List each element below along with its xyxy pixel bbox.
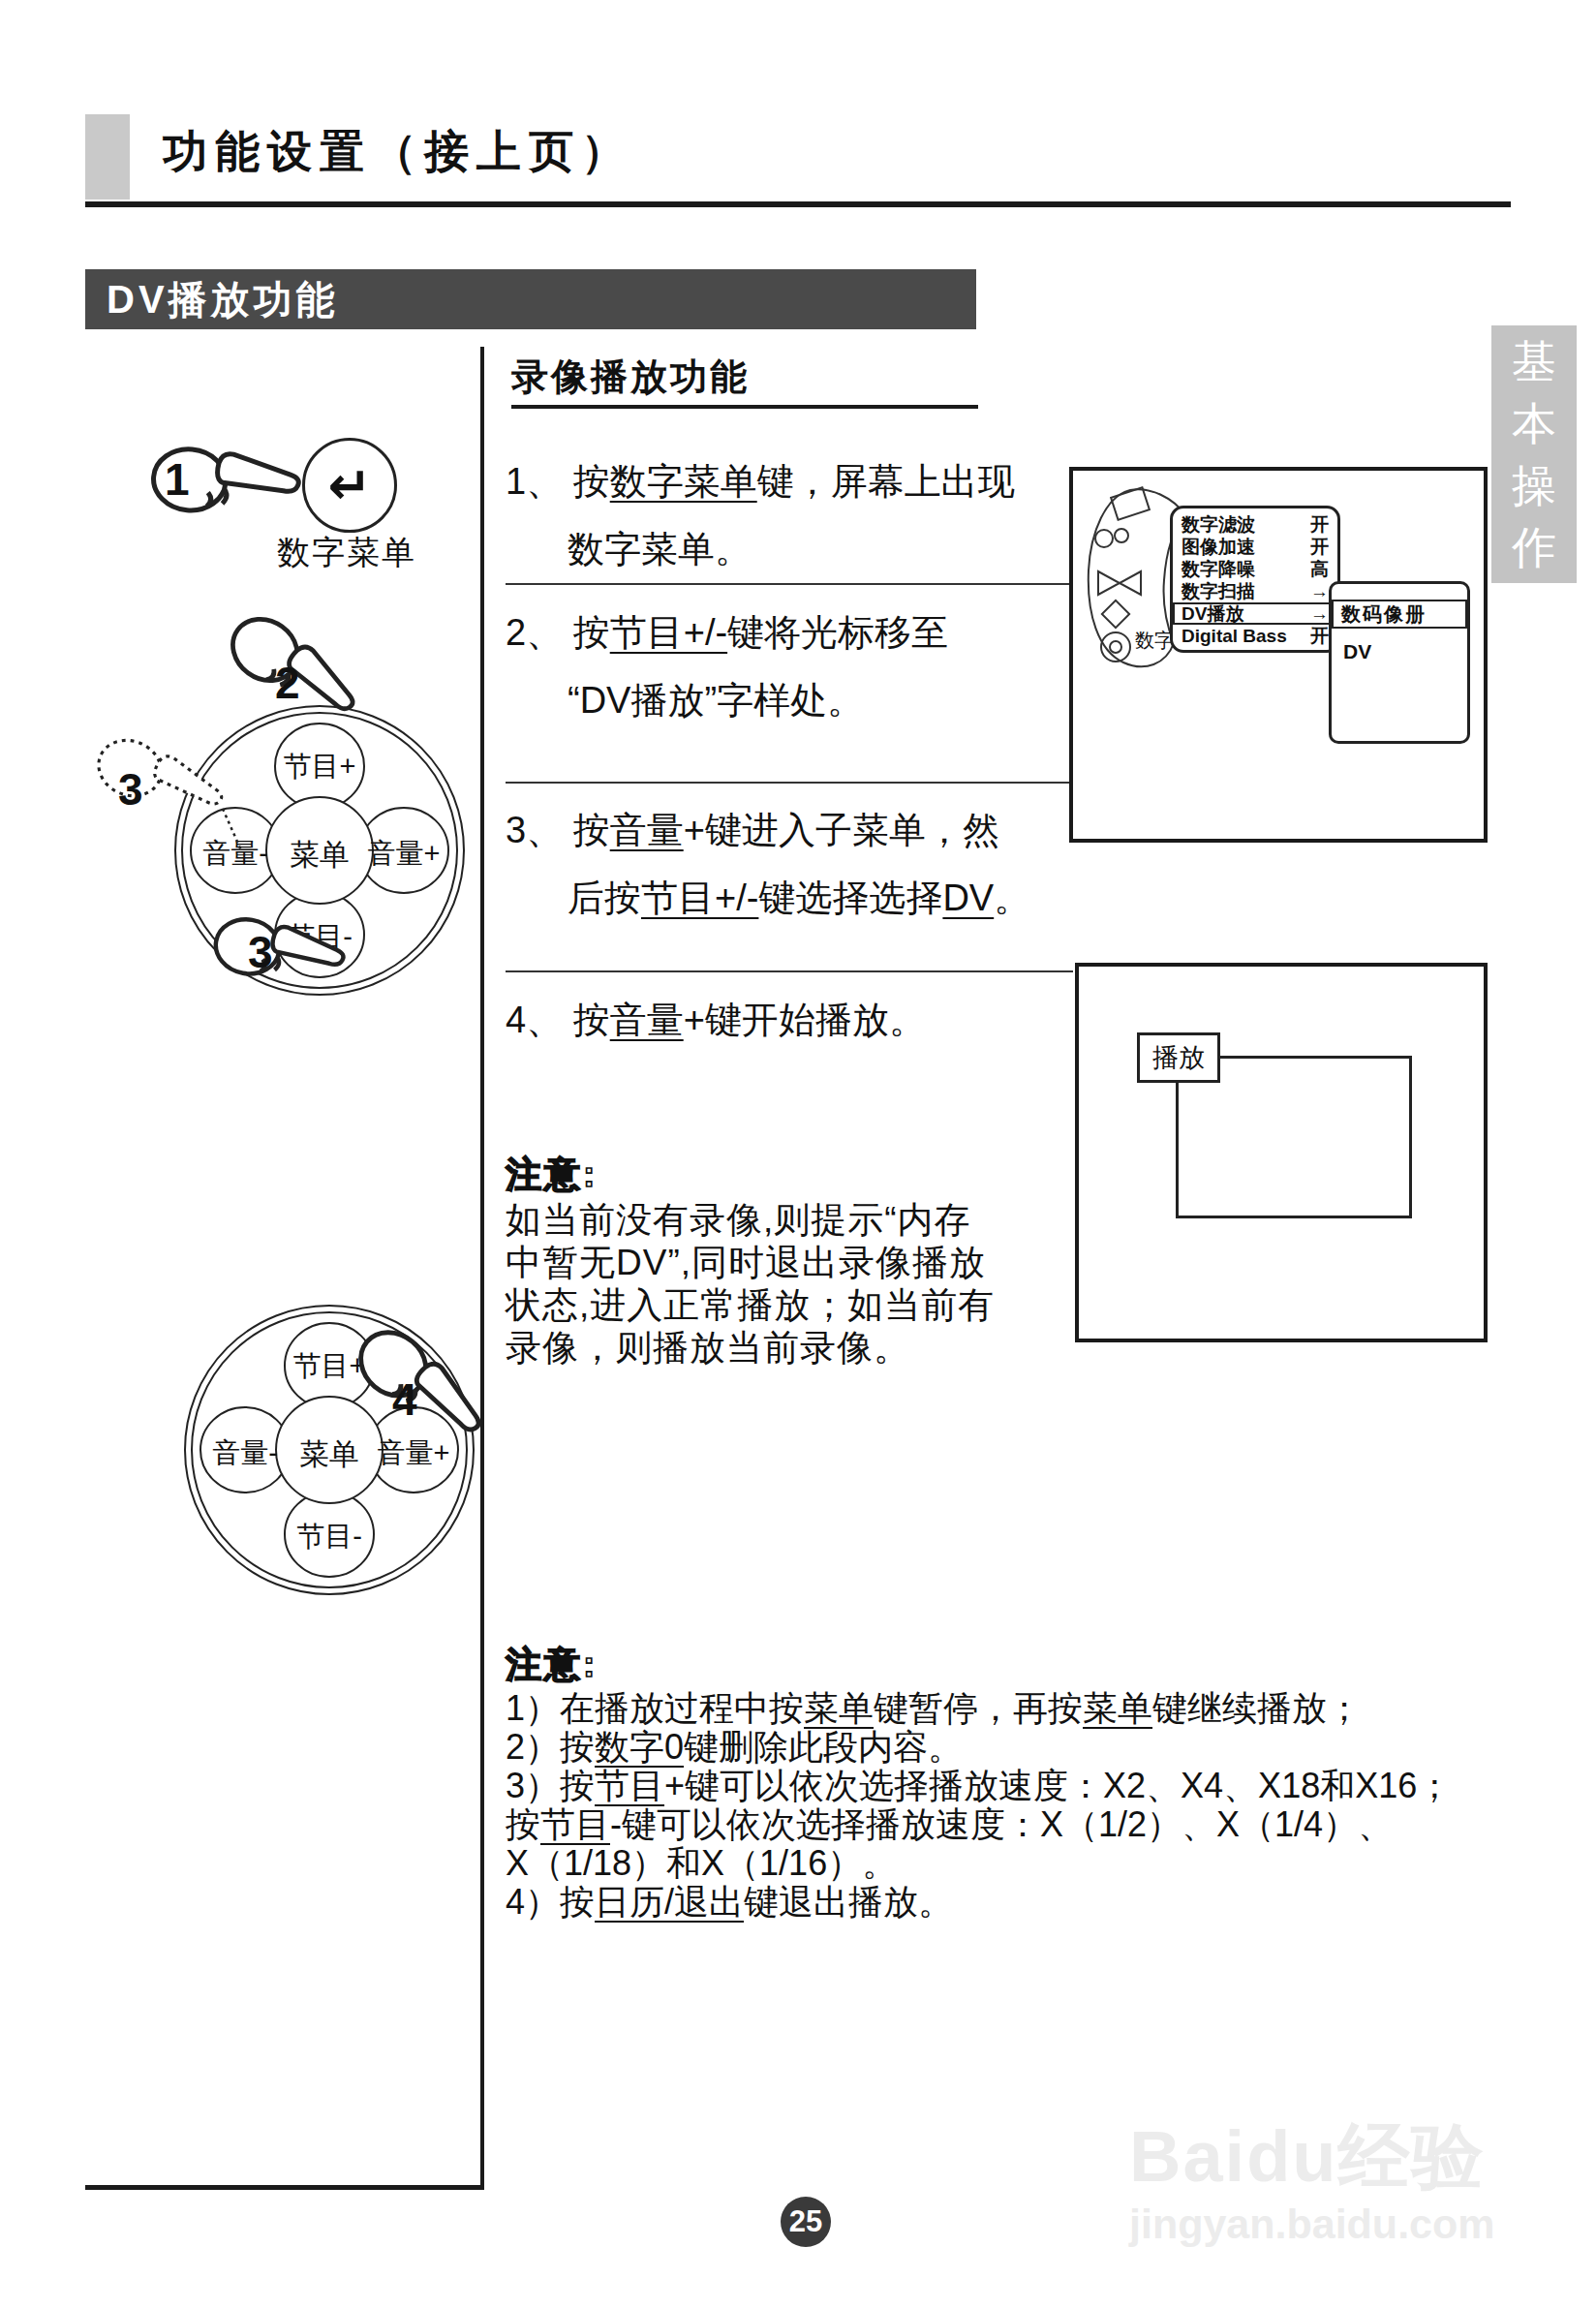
step-text: 数字菜单。 bbox=[506, 515, 1087, 583]
playback-osd-label: 播放 bbox=[1137, 1032, 1220, 1083]
watermark-url: jingyan.baidu.com bbox=[1129, 2201, 1495, 2248]
menu-key-label: 数字菜单 bbox=[277, 531, 416, 575]
menu-row: 数字降噪高 bbox=[1173, 558, 1337, 580]
menu-key-button: ↵ bbox=[302, 438, 397, 533]
step-separator bbox=[506, 782, 1073, 784]
menu-row: 图像加速开 bbox=[1173, 536, 1337, 558]
note-line: 3）按节目+键可以依次选择播放速度：X2、X4、X18和X16； bbox=[506, 1767, 1532, 1805]
note-block-2: 注意: 1）在播放过程中按菜单键暂停，再按菜单键继续播放； 2）按数字0键删除此… bbox=[506, 1641, 1532, 1922]
header-rule bbox=[85, 201, 1511, 207]
note-line: 中暂无DV”,同时退出录像播放 bbox=[506, 1242, 1096, 1284]
chapter-tab: 基 本 操 作 bbox=[1491, 325, 1577, 583]
dotted-pointer-trail bbox=[218, 804, 261, 862]
chapter-tab-char: 作 bbox=[1512, 516, 1556, 578]
step3-callout-b: 3 bbox=[248, 926, 273, 978]
step-text: 1、 按数字菜单键，屏幕上出现 bbox=[506, 447, 1087, 515]
note-title: 注意: bbox=[506, 1641, 1532, 1689]
note-line: 2）按数字0键删除此段内容。 bbox=[506, 1728, 1532, 1767]
chapter-tab-char: 基 bbox=[1512, 330, 1556, 392]
section-banner-title: DV播放功能 bbox=[107, 273, 339, 326]
digital-key-label: 数字 bbox=[1135, 628, 1174, 654]
volume-plus-button: 音量+ bbox=[348, 835, 460, 874]
subsection-title: 录像播放功能 bbox=[511, 353, 750, 402]
step-text: “DV播放”字样处。 bbox=[506, 666, 1087, 734]
menu-row: 数字滤波开 bbox=[1173, 513, 1337, 536]
step-text: 后按节目+/-键选择选择DV。 bbox=[506, 864, 1087, 932]
step1-callout: 1 bbox=[165, 453, 190, 506]
note-title: 注意: bbox=[506, 1151, 1096, 1199]
step3-callout-a: 3 bbox=[118, 763, 143, 816]
menu-row: Digital Bass开 bbox=[1173, 625, 1337, 647]
program-minus-button: 节目- bbox=[271, 1518, 387, 1556]
note-line: 按节目-键可以依次选择播放速度：X（1/2）、X（1/4）、 bbox=[506, 1805, 1532, 1844]
step-separator bbox=[506, 583, 1073, 585]
watermark-logo: Baidu经验 bbox=[1129, 2109, 1486, 2206]
column-divider bbox=[480, 347, 484, 2187]
page-number: 25 bbox=[789, 2204, 822, 2239]
step-2: 2、 按节目+/-键将光标移至 “DV播放”字样处。 bbox=[506, 599, 1087, 734]
header-square bbox=[85, 114, 130, 200]
step-text: 4、 按音量+键开始播放。 bbox=[506, 986, 1087, 1054]
left-column-bottom-rule bbox=[85, 2185, 484, 2190]
enter-arrow-icon: ↵ bbox=[327, 459, 371, 511]
menu-row-selected: DV播放→ bbox=[1173, 602, 1337, 625]
page-title: 功能设置（接上页） bbox=[163, 122, 633, 182]
note-line: X（1/18）和X（1/16）。 bbox=[506, 1844, 1532, 1883]
note-line: 录像，则播放当前录像。 bbox=[506, 1327, 1096, 1370]
submenu-item: DV bbox=[1343, 640, 1371, 663]
note-line: 如当前没有录像,则提示“内存 bbox=[506, 1199, 1096, 1242]
page-number-badge: 25 bbox=[781, 2197, 831, 2247]
note-line: 4）按日历/退出键退出播放。 bbox=[506, 1883, 1532, 1922]
subsection-underline bbox=[511, 405, 978, 409]
step4-callout: 4 bbox=[392, 1373, 417, 1426]
step-text: 2、 按节目+/-键将光标移至 bbox=[506, 599, 1087, 666]
step2-callout: 2 bbox=[275, 657, 300, 709]
menu-row: 数字扫描→ bbox=[1173, 580, 1337, 602]
step-text: 3、 按音量+键进入子菜单，然 bbox=[506, 796, 1087, 864]
chapter-tab-char: 本 bbox=[1512, 392, 1556, 454]
program-plus-button: 节目+ bbox=[261, 748, 378, 786]
digital-menu: 数字滤波开 图像加速开 数字降噪高 数字扫描→ DV播放→ Digital Ba… bbox=[1170, 506, 1340, 653]
manual-page: 功能设置（接上页） DV播放功能 基 本 操 作 录像播放功能 1 ↵ 数字菜单 bbox=[0, 0, 1596, 2309]
note-block-1: 注意: 如当前没有录像,则提示“内存 中暂无DV”,同时退出录像播放 状态,进入… bbox=[506, 1151, 1096, 1370]
step-4: 4、 按音量+键开始播放。 bbox=[506, 986, 1087, 1054]
submenu-selected: 数码像册 bbox=[1332, 600, 1467, 629]
step-1: 1、 按数字菜单键，屏幕上出现 数字菜单。 bbox=[506, 447, 1087, 583]
note-line: 状态,进入正常播放；如当前有 bbox=[506, 1284, 1096, 1327]
step-separator bbox=[506, 970, 1073, 972]
dv-submenu: 数码像册 DV bbox=[1329, 581, 1470, 744]
note-line: 1）在播放过程中按菜单键暂停，再按菜单键继续播放； bbox=[506, 1689, 1532, 1728]
step-3: 3、 按音量+键进入子菜单，然 后按节目+/-键选择选择DV。 bbox=[506, 796, 1087, 932]
chapter-tab-char: 操 bbox=[1512, 454, 1556, 516]
